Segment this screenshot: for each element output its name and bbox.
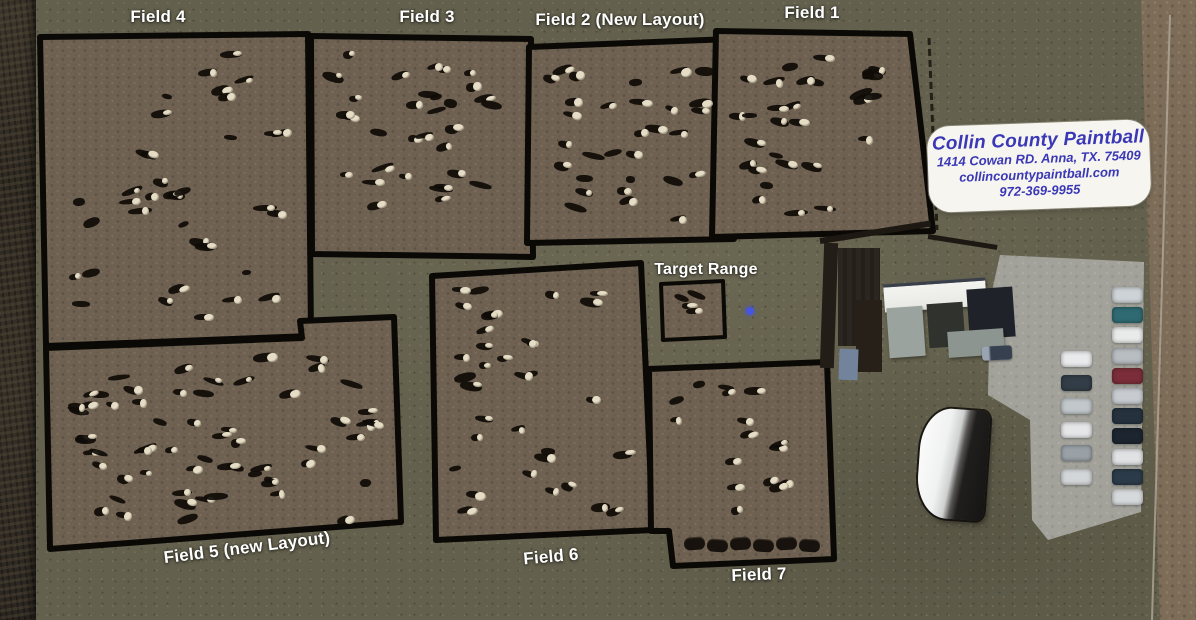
inflatable-bunker bbox=[779, 105, 789, 111]
field-7-bottom-bunker bbox=[707, 538, 729, 552]
parked-car bbox=[1112, 307, 1143, 323]
bunker-shadow bbox=[177, 512, 200, 526]
bunker-shadow bbox=[224, 135, 237, 141]
bunker-shadow bbox=[742, 113, 757, 118]
inflatable-bunker bbox=[484, 325, 494, 333]
inflatable-bunker bbox=[88, 434, 97, 439]
inflatable-bunker bbox=[642, 100, 653, 108]
inflatable-bunker bbox=[732, 457, 742, 465]
inflatable-bunker bbox=[184, 489, 191, 497]
inflatable-bunker bbox=[78, 403, 84, 412]
parked-car bbox=[1112, 287, 1143, 303]
inflatable-bunker bbox=[658, 125, 669, 135]
inflatable-bunker bbox=[271, 294, 282, 304]
inflatable-bunker bbox=[735, 484, 746, 492]
parked-car bbox=[1061, 398, 1092, 414]
bunker-shadow bbox=[468, 285, 489, 296]
parked-car bbox=[1061, 422, 1092, 438]
inflatable-bunker bbox=[184, 364, 193, 372]
field-3-bunkers bbox=[322, 50, 518, 244]
bunker-shadow bbox=[782, 62, 799, 73]
inflatable-bunker bbox=[368, 408, 378, 413]
inflatable-bunker bbox=[462, 354, 470, 362]
bunker-shadow bbox=[427, 106, 446, 115]
parked-car bbox=[1112, 428, 1143, 444]
bunker-shadow bbox=[564, 201, 588, 215]
bunker-shadow bbox=[322, 70, 346, 85]
field-6-bunkers bbox=[444, 286, 638, 518]
inflatable-bunker bbox=[87, 401, 99, 411]
inflatable-bunker bbox=[229, 428, 238, 434]
field-7-bottom-bunker bbox=[776, 536, 798, 550]
bunker-shadow bbox=[629, 78, 642, 86]
bunker-shadow bbox=[197, 454, 214, 464]
bunker-shadow bbox=[193, 389, 215, 399]
bunker-shadow bbox=[626, 176, 636, 183]
inflatable-bunker bbox=[142, 207, 150, 215]
bunker-shadow bbox=[760, 181, 773, 190]
parked-car bbox=[1112, 368, 1143, 384]
field-4-bunkers bbox=[52, 50, 298, 328]
inflatable-bunker bbox=[695, 308, 704, 315]
inflatable-bunker bbox=[518, 426, 526, 435]
inflatable-bunker bbox=[592, 395, 603, 405]
inflatable-bunker bbox=[624, 188, 632, 195]
inflatable-bunker bbox=[143, 446, 152, 455]
bunker-shadow bbox=[369, 127, 387, 137]
inflatable-bunker bbox=[552, 487, 560, 497]
inflatable-bunker bbox=[473, 82, 482, 91]
field-7-bottom-bunker bbox=[730, 536, 752, 550]
inflatable-bunker bbox=[425, 133, 435, 142]
inflatable-bunker bbox=[193, 420, 202, 428]
inflatable-bunker bbox=[132, 197, 142, 205]
inflatable-bunker bbox=[484, 363, 491, 368]
inflatable-bunker bbox=[799, 118, 811, 127]
bunker-shadow bbox=[162, 93, 173, 100]
inflatable-bunker bbox=[775, 79, 784, 89]
inflatable-bunker bbox=[271, 478, 279, 485]
parked-car bbox=[1112, 348, 1143, 364]
bunker-shadow bbox=[359, 479, 371, 488]
bunker-shadow bbox=[340, 378, 363, 390]
bunker-shadow bbox=[82, 215, 101, 230]
parked-car bbox=[1112, 489, 1143, 505]
inflatable-bunker bbox=[375, 179, 386, 187]
bunker-shadow bbox=[769, 151, 784, 159]
aerial-map: Field 4 Field 3 Field 2 (New Layout) Fie… bbox=[0, 0, 1196, 620]
inflatable-bunker bbox=[345, 171, 353, 177]
field-7-bottom-bunker bbox=[799, 538, 821, 552]
inflatable-bunker bbox=[633, 150, 644, 160]
inflatable-bunker bbox=[476, 433, 482, 441]
parked-car bbox=[1112, 469, 1143, 485]
bunker-shadow bbox=[443, 98, 457, 108]
inflatable-bunker bbox=[150, 192, 160, 202]
inflatable-bunker bbox=[111, 402, 120, 411]
inflatable-bunker bbox=[316, 445, 326, 454]
info-card: Collin County Paintball 1414 Cowan RD. A… bbox=[927, 119, 1152, 213]
parked-car bbox=[1112, 327, 1143, 343]
inflatable-bunker bbox=[701, 107, 709, 114]
bunker-shadow bbox=[72, 301, 90, 307]
inflatable-bunker bbox=[192, 465, 203, 474]
field-2-bunkers bbox=[540, 58, 718, 228]
bunker-shadow bbox=[152, 417, 167, 427]
inflatable-bunker bbox=[736, 506, 743, 513]
field-7-label: Field 7 bbox=[731, 564, 787, 586]
inflatable-bunker bbox=[404, 173, 412, 181]
bunker-shadow bbox=[89, 447, 109, 458]
inflatable-bunker bbox=[552, 291, 559, 299]
inflatable-bunker bbox=[171, 446, 179, 453]
inflatable-bunker bbox=[546, 453, 556, 463]
inflatable-bunker bbox=[305, 459, 317, 470]
target-range-label: Target Range bbox=[654, 261, 757, 279]
decor-layer bbox=[0, 0, 1196, 620]
inflatable-bunker bbox=[475, 491, 487, 501]
parked-car bbox=[1061, 445, 1092, 461]
inflatable-bunker bbox=[746, 74, 758, 85]
field-1-label: Field 1 bbox=[784, 3, 839, 23]
inflatable-bunker bbox=[574, 97, 584, 107]
bunker-shadow bbox=[109, 494, 127, 505]
inflatable-bunker bbox=[207, 242, 217, 248]
bunker-shadow bbox=[668, 394, 685, 405]
bunker-shadow bbox=[177, 221, 189, 230]
inflatable-bunker bbox=[675, 416, 682, 425]
inflatable-bunker bbox=[745, 417, 754, 426]
inflatable-bunker bbox=[98, 461, 108, 471]
inflatable-bunker bbox=[827, 206, 834, 213]
bunker-shadow bbox=[204, 493, 228, 501]
inflatable-bunker bbox=[798, 210, 805, 216]
inflatable-bunker bbox=[263, 465, 271, 472]
inflatable-bunker bbox=[146, 471, 152, 476]
parked-car bbox=[1061, 469, 1092, 485]
inflatable-bunker bbox=[123, 511, 132, 521]
inflatable-bunker bbox=[460, 286, 471, 294]
inflatable-bunker bbox=[266, 352, 278, 362]
inflatable-bunker bbox=[865, 135, 873, 144]
parked-car bbox=[1112, 408, 1143, 424]
inflatable-bunker bbox=[101, 506, 109, 515]
inflatable-bunker bbox=[485, 342, 494, 348]
parked-car bbox=[1061, 375, 1092, 391]
inflatable-bunker bbox=[575, 70, 586, 81]
inflatable-bunker bbox=[349, 50, 355, 56]
target-range-bunkers bbox=[668, 292, 712, 326]
inflatable-bunker bbox=[227, 92, 237, 101]
inflatable-bunker bbox=[443, 66, 451, 74]
bunker-shadow bbox=[662, 175, 684, 188]
field-3-label: Field 3 bbox=[399, 7, 454, 27]
inflatable-bunker bbox=[282, 128, 293, 138]
bunker-shadow bbox=[862, 92, 882, 101]
bunker-shadow bbox=[686, 289, 706, 301]
inflatable-bunker bbox=[608, 102, 618, 110]
inflatable-bunker bbox=[469, 70, 476, 77]
field-7-bottom-bunker bbox=[684, 536, 706, 550]
inflatable-bunker bbox=[524, 371, 534, 382]
inflatable-bunker bbox=[679, 215, 689, 225]
bunker-shadow bbox=[108, 374, 130, 382]
inflatable-bunker bbox=[756, 388, 765, 395]
field-4-label: Field 4 bbox=[130, 7, 185, 27]
bunker-shadow bbox=[480, 99, 502, 111]
inflatable-bunker bbox=[402, 71, 411, 80]
bunker-shadow bbox=[603, 148, 621, 158]
inflatable-bunker bbox=[204, 314, 214, 321]
inflatable-bunker bbox=[236, 438, 246, 444]
field-1-bunkers bbox=[728, 44, 910, 220]
bunker-shadow bbox=[82, 267, 102, 279]
field-2-label: Field 2 (New Layout) bbox=[535, 10, 704, 30]
bunker-shadow bbox=[692, 380, 705, 389]
inflatable-bunker bbox=[209, 68, 217, 77]
bunker-shadow bbox=[581, 150, 605, 161]
bunker-shadow bbox=[72, 198, 84, 207]
bunker-shadow bbox=[695, 67, 715, 77]
bunker-shadow bbox=[448, 465, 461, 472]
inflatable-bunker bbox=[233, 296, 242, 305]
inflatable-bunker bbox=[597, 291, 608, 297]
inflatable-bunker bbox=[670, 106, 680, 116]
inflatable-bunker bbox=[317, 363, 326, 373]
parked-car bbox=[1112, 388, 1143, 404]
inflatable-bunker bbox=[758, 195, 767, 205]
field-7-bunkers bbox=[662, 380, 816, 518]
inflatable-bunker bbox=[346, 111, 355, 119]
parked-car bbox=[1061, 351, 1092, 367]
parked-car bbox=[1112, 449, 1143, 465]
bunker-shadow bbox=[242, 269, 252, 275]
bunker-shadow bbox=[468, 179, 491, 190]
bunker-shadow bbox=[576, 174, 594, 182]
field-7-bottom-bunker bbox=[753, 538, 775, 552]
inflatable-bunker bbox=[416, 101, 424, 109]
inflatable-bunker bbox=[140, 399, 147, 408]
inflatable-bunker bbox=[180, 389, 187, 396]
field-5-bunkers bbox=[58, 352, 386, 528]
inflatable-bunker bbox=[825, 55, 835, 63]
inflatable-bunker bbox=[278, 211, 288, 219]
inflatable-bunker bbox=[571, 111, 582, 122]
